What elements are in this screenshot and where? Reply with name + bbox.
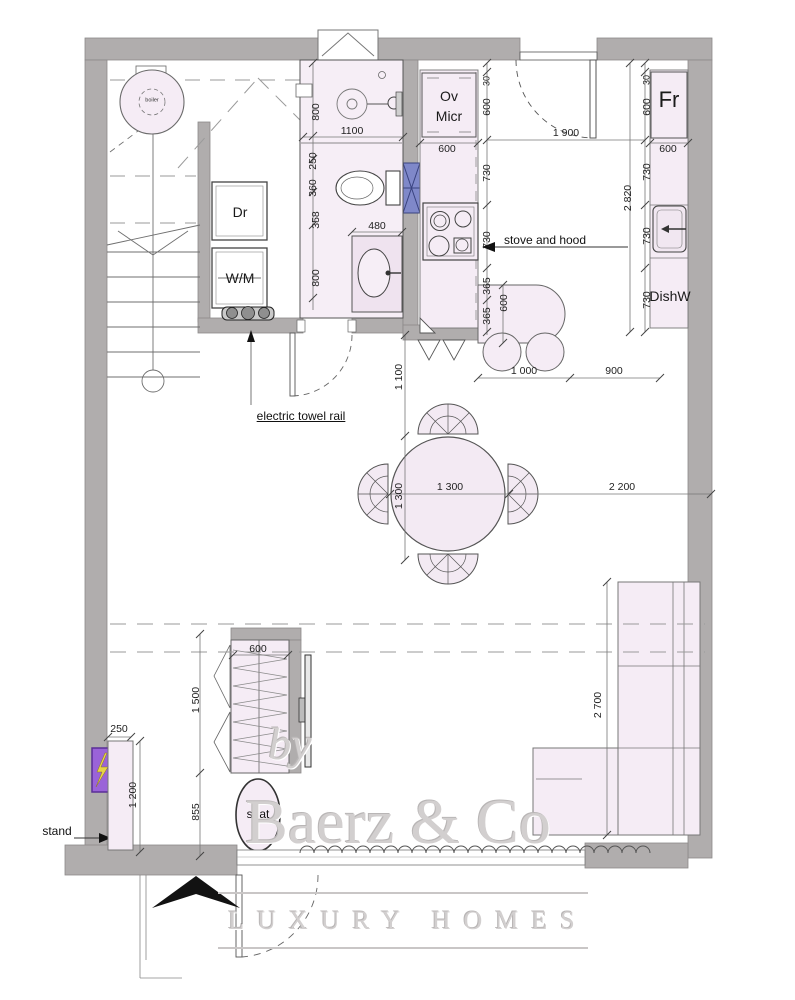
ceiling-dashed-lines-living	[110, 624, 705, 652]
towel-rail-leader	[247, 330, 255, 405]
stove-leader	[482, 242, 628, 252]
kitchen-right-counter	[650, 70, 688, 328]
dryer-box	[212, 182, 267, 240]
washing-machine-box	[212, 248, 267, 308]
duct-shaft	[403, 163, 420, 213]
towel-rail	[222, 307, 274, 321]
stairs	[107, 110, 200, 392]
skylight-shaft	[318, 30, 378, 60]
seat-pouf	[236, 779, 280, 851]
watermark-rules	[218, 893, 588, 948]
floor-plan-drawing	[0, 0, 795, 1000]
floor-plan: boilerDrW/MOvMicrFrDishWstove and hoodel…	[0, 0, 795, 1000]
bar-peninsula	[478, 285, 565, 371]
stool-2	[526, 333, 564, 371]
bathroom	[296, 60, 403, 318]
stand-unit	[108, 741, 133, 850]
stool-1	[483, 333, 521, 371]
kitchen-left-counter	[420, 70, 478, 328]
wardrobe	[214, 640, 289, 773]
bathroom-door	[290, 320, 356, 396]
boiler	[120, 66, 184, 134]
bottom-window	[237, 850, 585, 865]
entry-door	[516, 52, 597, 138]
sofa	[533, 582, 700, 835]
terrace-door	[140, 875, 318, 978]
